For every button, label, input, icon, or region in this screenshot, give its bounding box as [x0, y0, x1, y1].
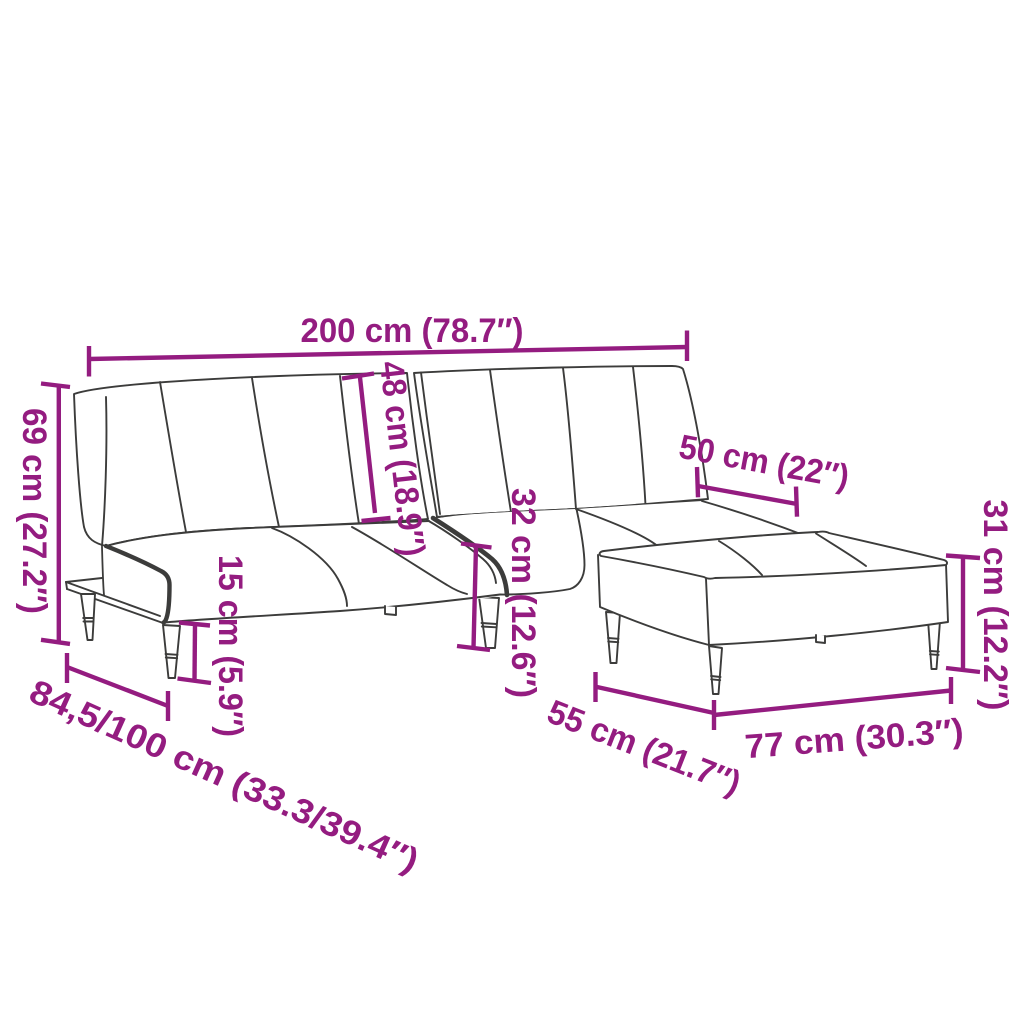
svg-text:200 cm (78.7″): 200 cm (78.7″) — [301, 312, 524, 350]
svg-text:69 cm (27.2″): 69 cm (27.2″) — [15, 408, 53, 614]
svg-text:31 cm (12.2″): 31 cm (12.2″) — [976, 500, 1014, 711]
svg-text:32 cm (12.6″): 32 cm (12.6″) — [504, 488, 542, 698]
svg-text:15 cm (5.9″): 15 cm (5.9″) — [211, 555, 249, 737]
